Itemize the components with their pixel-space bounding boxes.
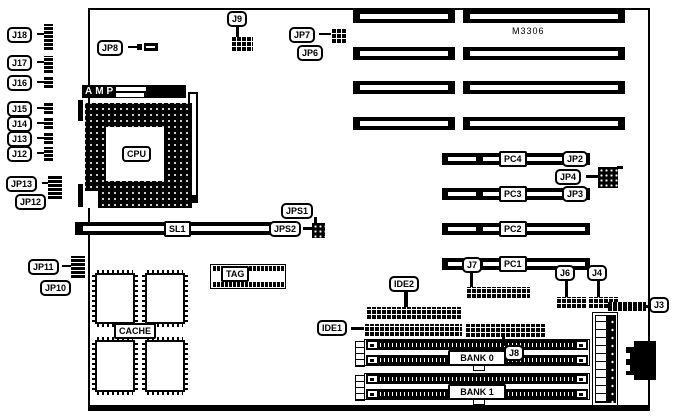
callout-ide2: IDE2 — [389, 276, 419, 292]
pointer-j17 — [37, 61, 44, 63]
jumper-jp8-cap — [137, 44, 142, 50]
cpu-left-capacitor-1 — [78, 100, 83, 121]
jumper-jp4 — [598, 167, 618, 188]
amp-bar-window-2 — [116, 93, 144, 97]
connector-ide2 — [366, 307, 461, 319]
isa-slot-1-short — [353, 10, 455, 23]
pointer-ide1 — [351, 327, 364, 330]
pointer-ide2 — [404, 291, 408, 307]
callout-j9: J9 — [227, 11, 247, 27]
callout-j4: J4 — [587, 265, 607, 281]
callout-jp7: JP7 — [289, 27, 315, 43]
callout-cpu: CPU — [122, 146, 151, 162]
keyboard-connector-notch-1 — [626, 353, 630, 359]
callout-j6: J6 — [555, 265, 575, 281]
callout-j7: J7 — [462, 257, 482, 273]
isa-slot-4-long — [463, 117, 625, 130]
connector-j3 — [608, 302, 646, 311]
callout-cache: CACHE — [114, 323, 156, 339]
keyboard-connector — [634, 341, 656, 380]
pointer-j6 — [565, 280, 568, 297]
jumper-jps — [312, 223, 325, 238]
callout-j17: J17 — [7, 55, 32, 71]
callout-bank0: BANK 0 — [448, 350, 506, 366]
power-connector — [592, 312, 618, 406]
callout-bank1: BANK 1 — [448, 384, 506, 400]
jumper-jp13-jp12 — [48, 176, 62, 199]
callout-jps2: JPS2 — [269, 221, 301, 237]
connector-j17 — [44, 56, 53, 73]
connector-j6 — [556, 297, 587, 308]
callout-pc2: PC2 — [499, 221, 527, 237]
callout-pc4: PC4 — [499, 151, 527, 167]
power-connector-pins-left — [595, 315, 607, 403]
connector-j16 — [44, 77, 53, 88]
callout-j14: J14 — [7, 116, 32, 132]
connector-j12 — [44, 147, 53, 161]
simm-bank1-pins — [355, 375, 365, 401]
callout-jp2: JP2 — [562, 151, 588, 167]
simm-socket-bank0-row1 — [366, 340, 588, 350]
pointer-j13 — [37, 137, 44, 139]
callout-tag: TAG — [221, 266, 249, 282]
isa-slot-2-long — [463, 47, 625, 60]
pointer-jp8 — [128, 46, 137, 48]
cache-chip-3 — [92, 337, 138, 395]
callout-j18: J18 — [7, 27, 32, 43]
connector-j14 — [44, 118, 53, 129]
keyboard-connector-notch-2 — [626, 365, 630, 371]
callout-pc1: PC1 — [499, 256, 527, 272]
isa-slot-4-short — [353, 117, 455, 130]
callout-jps1: JPS1 — [281, 203, 313, 219]
cpu-socket-notch — [85, 191, 98, 208]
callout-pc3: PC3 — [499, 186, 527, 202]
callout-jp8: JP8 — [97, 40, 123, 56]
callout-jp4: JP4 — [555, 169, 581, 185]
connector-j9 — [231, 37, 253, 51]
callout-jp12: JP12 — [15, 194, 46, 210]
amp-label: AMP — [85, 86, 116, 97]
pointer-jp4 — [586, 175, 598, 178]
jumper-jp8-slot — [146, 46, 155, 48]
jumper-jp11-jp10 — [71, 256, 85, 278]
connector-j18 — [44, 24, 53, 50]
cpu-side-bar-foot — [192, 197, 198, 203]
amp-bar-window-1 — [116, 87, 146, 91]
pointer-j16 — [37, 81, 44, 83]
isa-slot-2-short — [353, 47, 455, 60]
callout-j16: J16 — [7, 75, 32, 91]
power-connector-pins-right — [607, 315, 616, 403]
callout-j8: J8 — [504, 345, 524, 361]
pointer-j4 — [597, 280, 600, 297]
callout-sl1: SL1 — [164, 221, 191, 237]
pointer-jp13 — [42, 182, 48, 184]
board-model-text: M3306 — [512, 26, 572, 36]
callout-j3: J3 — [649, 297, 669, 313]
callout-jp6: JP6 — [297, 45, 323, 61]
connector-j8 — [465, 324, 546, 337]
simm-socket-bank1-row1 — [366, 374, 588, 384]
connector-j13 — [44, 133, 53, 144]
pointer-j7 — [470, 272, 473, 287]
cpu-left-capacitor-2 — [78, 184, 83, 207]
callout-jp13: JP13 — [6, 176, 37, 192]
connector-j15 — [44, 103, 53, 114]
callout-ide1: IDE1 — [317, 320, 347, 336]
pointer-jps2 — [303, 227, 312, 230]
callout-jp3: JP3 — [562, 186, 588, 202]
pointer-j12 — [37, 152, 44, 154]
callout-j15: J15 — [7, 101, 32, 117]
pointer-j8 — [502, 336, 505, 346]
connector-ide1 — [364, 324, 462, 336]
pointer-j15 — [37, 107, 44, 109]
cache-chip-1 — [92, 270, 138, 327]
jumper-jp4-pin1 — [617, 166, 623, 169]
motherboard-diagram: J18 J17 J16 J15 J14 J13 J12 JP13 JP12 JP… — [0, 0, 676, 416]
callout-j13: J13 — [7, 131, 32, 147]
isa-slot-3-long — [463, 81, 625, 94]
pointer-jps1 — [314, 217, 317, 224]
isa-slot-3-short — [353, 81, 455, 94]
pointer-jp7 — [319, 33, 331, 35]
pointer-j18 — [37, 33, 44, 35]
callout-j12: J12 — [7, 146, 32, 162]
connector-j7 — [466, 287, 530, 298]
jumper-jp7-jp6 — [331, 28, 347, 43]
cache-chip-2 — [142, 270, 188, 327]
pointer-j14 — [37, 122, 44, 124]
cache-chip-4 — [142, 337, 188, 395]
pointer-jp11 — [62, 265, 71, 267]
simm-bank0-pins — [355, 341, 365, 367]
isa-slot-1-long — [463, 10, 625, 23]
callout-jp10: JP10 — [40, 280, 71, 296]
callout-jp11: JP11 — [28, 259, 59, 275]
pointer-j9 — [236, 27, 239, 37]
